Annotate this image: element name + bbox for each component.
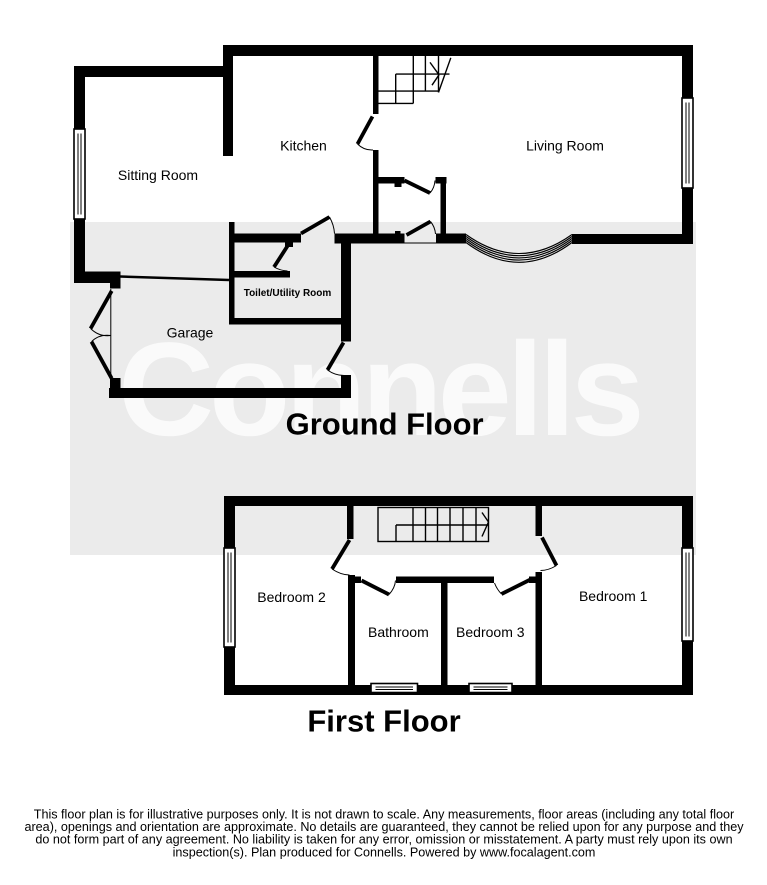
svg-text:Bedroom 3: Bedroom 3 <box>456 624 525 640</box>
svg-text:Kitchen: Kitchen <box>280 138 327 154</box>
svg-text:Sitting Room: Sitting Room <box>118 167 198 183</box>
svg-text:Bedroom 2: Bedroom 2 <box>257 589 326 605</box>
svg-text:Ground Floor: Ground Floor <box>286 407 484 442</box>
svg-text:Living Room: Living Room <box>526 138 604 154</box>
svg-text:Toilet/Utility Room: Toilet/Utility Room <box>244 288 332 299</box>
svg-text:First Floor: First Floor <box>307 704 460 739</box>
svg-text:Bedroom 1: Bedroom 1 <box>579 588 648 604</box>
svg-text:Garage: Garage <box>167 325 214 341</box>
svg-text:Bathroom: Bathroom <box>368 624 429 640</box>
svg-text:inspection(s). Plan produced f: inspection(s). Plan produced for Connell… <box>173 845 596 859</box>
